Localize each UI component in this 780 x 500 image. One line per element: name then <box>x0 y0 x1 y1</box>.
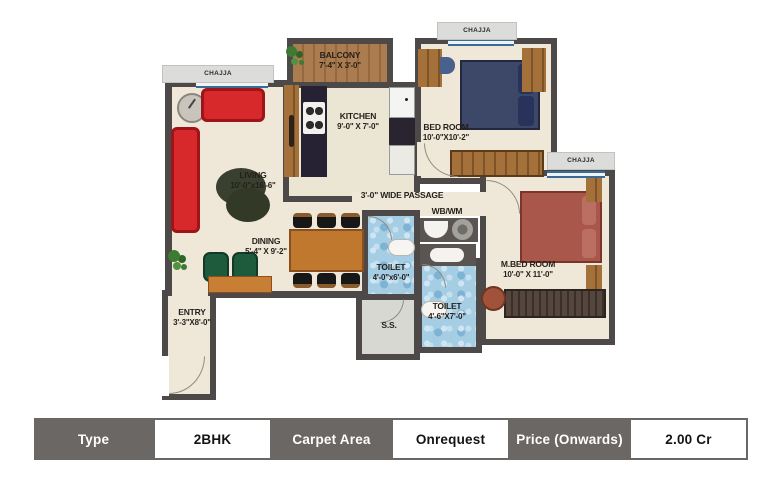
label-ss: S.S. <box>381 320 396 331</box>
label-dining: DINING 5'-4" X 9'-2" <box>245 236 287 257</box>
pillow <box>582 229 596 258</box>
chajja-label-top-right: CHAJJA <box>437 22 517 40</box>
washbasin-counter <box>420 218 478 242</box>
spec-carpet-label: Carpet Area <box>272 418 391 460</box>
vanity-counter <box>420 244 476 266</box>
spec-carpet-value: Onrequest <box>391 418 510 460</box>
spec-type-value: 2BHK <box>153 418 272 460</box>
chajja-label-top-left: CHAJJA <box>162 65 274 83</box>
pillow <box>518 96 534 126</box>
washing-machine-icon <box>452 219 473 240</box>
dining-table <box>289 229 364 272</box>
bedroom-door-gap <box>417 142 424 176</box>
label-entry: ENTRY 3'-3"X8'-0" <box>173 307 211 328</box>
dining-chair <box>317 273 336 288</box>
label-master-bedroom: M.BED ROOM 10'-0" X 11'-0" <box>501 259 555 280</box>
dining-chair <box>293 213 312 228</box>
sink-icon <box>430 248 464 262</box>
bedroom-window <box>448 39 514 46</box>
plant-balcony-icon <box>286 46 297 57</box>
sofa-top <box>201 88 265 122</box>
label-toilet-common: TOILET 4'-0"x6'-0" <box>373 262 410 283</box>
bedroom-wardrobe <box>450 150 544 177</box>
mbed-window <box>547 171 605 178</box>
stool <box>481 286 506 311</box>
spec-type-label: Type <box>34 418 153 460</box>
spec-table: Type 2BHK Carpet Area Onrequest Price (O… <box>34 418 748 460</box>
floor-plan: CHAJJA CHAJJA CHAJJA <box>0 0 780 410</box>
spec-price-label: Price (Onwards) <box>510 418 629 460</box>
dining-chair <box>293 273 312 288</box>
master-wardrobe <box>504 289 606 318</box>
entry-door-gap <box>162 356 169 396</box>
plant-living-icon <box>168 250 180 262</box>
dining-chair <box>341 273 360 288</box>
kitchen-counter <box>301 86 327 177</box>
spec-price-value: 2.00 Cr <box>629 418 748 460</box>
kitchen-cabinet-light <box>389 145 415 175</box>
dining-chair <box>341 213 360 228</box>
toilet-seat-common-icon <box>388 239 415 256</box>
fridge <box>389 87 415 118</box>
wash-basin-icon <box>424 221 448 238</box>
floor-plan-page: CHAJJA CHAJJA CHAJJA <box>0 0 780 500</box>
label-balcony: BALCONY 7'-4" X 3'-0" <box>319 50 361 71</box>
bedroom-chair <box>440 57 455 74</box>
dining-chair <box>317 213 336 228</box>
label-bedroom: BED ROOM 10'-0"X10'-2" <box>423 122 469 143</box>
entry-opening <box>172 290 208 299</box>
label-toilet-master: TOILET 4'-6"X7'-0" <box>428 301 466 322</box>
coffee-table-2 <box>226 188 270 222</box>
mbed-side-table-top <box>586 178 602 202</box>
bedroom-desk <box>418 49 442 87</box>
label-passage: 3'-0" WIDE PASSAGE <box>361 190 444 201</box>
sofa-left <box>171 127 200 233</box>
sideboard <box>208 276 272 293</box>
label-wbwm: WB/WM <box>432 206 463 217</box>
label-kitchen: KITCHEN 9'-0" X 7'-0" <box>337 111 379 132</box>
bedside-cabinet <box>522 48 546 92</box>
label-living: LIVING 10'-0"x16'-6" <box>230 170 275 191</box>
kitchen-cabinet-dark <box>389 118 415 145</box>
chajja-label-right: CHAJJA <box>547 152 615 170</box>
stove-icon <box>303 102 325 134</box>
kitchen-divider <box>284 85 299 177</box>
